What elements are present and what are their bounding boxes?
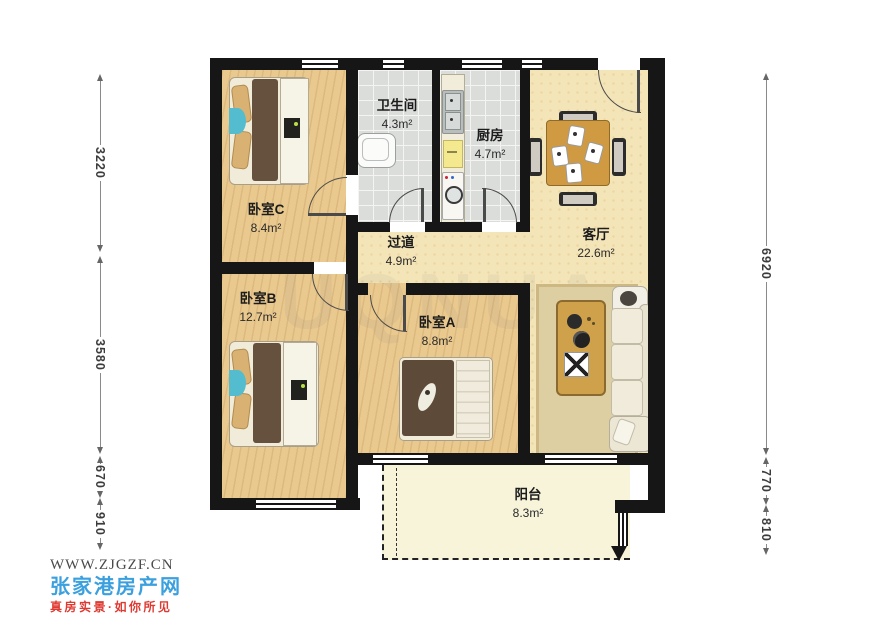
coffee-table-kettle-1 xyxy=(567,314,582,329)
wall-kitchen-right xyxy=(520,58,530,232)
balcony-area: 8.3m² xyxy=(513,505,544,522)
wall-bedroom-c-b-1 xyxy=(210,262,314,274)
dining-plate-3-dot xyxy=(591,149,595,153)
kitchen-washer-door xyxy=(445,186,463,204)
wall-left xyxy=(210,58,222,510)
bed-a-decor-dot xyxy=(425,390,430,395)
dining-chair-left-seat xyxy=(531,142,540,172)
dim-label: 3580 xyxy=(93,337,107,373)
wall-bath-kitchen-divider xyxy=(432,58,440,222)
bathroom-door-leaf xyxy=(421,188,424,222)
dining-plate-1-dot xyxy=(573,132,577,136)
bedroom-c-name: 卧室C xyxy=(248,201,285,220)
agency-logo: WWW.ZJGZF.CN 张家港房产网 真房实景·如你所见 xyxy=(50,556,182,615)
balcony-floor xyxy=(382,465,630,560)
dim-arrow xyxy=(763,505,769,512)
entry-door-leaf xyxy=(637,70,640,112)
dim-arrow xyxy=(763,548,769,555)
bathtub-inner xyxy=(362,138,389,161)
dim-arrow xyxy=(763,448,769,455)
dining-plate-4-dot xyxy=(571,169,575,173)
dim-label: 910 xyxy=(93,510,107,538)
tv-c-light xyxy=(294,122,298,126)
kitchen-area: 4.7m² xyxy=(475,146,506,163)
bed-c-throw xyxy=(229,108,246,134)
tv-b-light xyxy=(301,384,305,388)
hallway-area: 4.9m² xyxy=(386,253,417,270)
coffee-table-dot-1 xyxy=(587,317,591,321)
coffee-table-magazine xyxy=(564,352,589,377)
bedroom-a-name: 卧室A xyxy=(419,314,456,333)
hallway-label: 过道 4.9m² xyxy=(386,234,417,270)
living-room-name: 客厅 xyxy=(577,226,614,245)
dining-plate-2-dot xyxy=(557,152,561,156)
bedroom-c-area: 8.4m² xyxy=(248,220,285,237)
coffee-table-kettle-2 xyxy=(573,331,590,348)
bedroom-b-name: 卧室B xyxy=(239,290,276,309)
wall-bedroom-a-right xyxy=(518,283,530,465)
bedroom-b-door-leaf xyxy=(345,274,348,310)
bedroom-b-label: 卧室B 12.7m² xyxy=(239,290,276,326)
coffee-table xyxy=(556,300,606,396)
bedroom-c-door-leaf xyxy=(308,213,346,216)
agency-brand-name: 张家港房产网 xyxy=(50,575,182,600)
kitchen-washer-knob-1 xyxy=(445,176,448,179)
dim-right-810: 810 xyxy=(758,505,774,555)
dining-chair-right-seat xyxy=(614,142,623,172)
dim-label: 3220 xyxy=(93,145,107,181)
dim-arrow xyxy=(763,73,769,80)
wall-bedroom-a-top-2 xyxy=(406,283,530,295)
living-room-area: 22.6m² xyxy=(577,245,614,262)
bedroom-c-door-opening xyxy=(346,175,358,215)
bedroom-a-label: 卧室A 8.8m² xyxy=(419,314,456,350)
sofa-end-table-lamp xyxy=(620,291,637,306)
dim-left-3580: 3580 xyxy=(92,256,108,454)
dim-arrow xyxy=(97,543,103,550)
dim-left-3220: 3220 xyxy=(92,74,108,252)
dim-arrow xyxy=(97,74,103,81)
wall-spine-upper xyxy=(346,58,358,175)
balcony-label: 阳台 8.3m² xyxy=(513,486,544,522)
dim-label: 6920 xyxy=(759,246,773,282)
kitchen-drawer-handle xyxy=(447,151,457,153)
dim-arrow xyxy=(97,447,103,454)
balcony-name: 阳台 xyxy=(513,486,544,505)
floorplan-canvas: UQNUA xyxy=(0,0,880,625)
living-room-label: 客厅 22.6m² xyxy=(577,226,614,262)
window-kitchen xyxy=(462,58,502,70)
entry-door-opening xyxy=(598,58,640,70)
dim-label: 670 xyxy=(93,463,107,491)
dim-label: 770 xyxy=(759,467,773,495)
bathroom-label: 卫生间 4.3m² xyxy=(377,97,418,133)
kitchen-label: 厨房 4.7m² xyxy=(475,127,506,163)
dining-plate-1 xyxy=(566,125,585,147)
agency-website: WWW.ZJGZF.CN xyxy=(50,556,182,575)
wall-bedroom-a-top-1 xyxy=(358,283,368,295)
bed-a-mattress xyxy=(456,360,490,438)
dim-left-910: 910 xyxy=(92,498,108,550)
bedroom-c-label: 卧室C 8.4m² xyxy=(248,201,285,237)
dining-chair-bottom-seat xyxy=(563,195,593,204)
wall-balcony-end-triangle xyxy=(611,546,627,561)
tv-c xyxy=(284,118,300,138)
window-bedroom-b-south xyxy=(256,498,336,510)
window-balcony-side xyxy=(618,513,628,546)
bed-c-duvet xyxy=(252,79,278,181)
wall-spine-lower xyxy=(346,215,358,510)
dim-arrow xyxy=(763,498,769,505)
window-bedroom-a-south xyxy=(373,453,428,465)
kitchen-sink-basin-2 xyxy=(445,112,461,130)
sofa-cushion-3 xyxy=(611,380,643,416)
dim-arrow xyxy=(97,498,103,505)
dim-right-6920: 6920 xyxy=(758,73,774,455)
coffee-table-dot-2 xyxy=(592,322,595,325)
wall-right xyxy=(648,58,665,513)
dim-arrow xyxy=(97,491,103,498)
wall-bedroom-c-b-2 xyxy=(348,262,358,274)
sofa-cushion-2 xyxy=(611,344,643,380)
kitchen-sink-basin-1 xyxy=(445,93,461,111)
kitchen-drawer xyxy=(443,140,463,168)
window-bedroom-c xyxy=(302,58,338,70)
bedroom-a-area: 8.8m² xyxy=(419,333,456,350)
dim-arrow xyxy=(97,256,103,263)
dim-arrow xyxy=(97,245,103,252)
wall-hall-north-1 xyxy=(346,222,390,232)
dining-plate-4 xyxy=(565,162,583,183)
wall-balcony-step xyxy=(615,500,665,513)
wall-hall-north-2 xyxy=(425,222,482,232)
dim-label: 810 xyxy=(759,516,773,544)
bed-b-throw xyxy=(229,370,246,396)
dim-arrow xyxy=(763,457,769,464)
bathroom-name: 卫生间 xyxy=(377,97,418,116)
kitchen-door-leaf xyxy=(483,188,486,222)
wall-hall-north-3 xyxy=(516,222,530,232)
kitchen-sink-basin-1-drain xyxy=(450,99,453,102)
bedroom-b-area: 12.7m² xyxy=(239,309,276,326)
agency-slogan: 真房实景·如你所见 xyxy=(50,600,182,615)
dim-right-770: 770 xyxy=(758,457,774,505)
sofa-cushion-1 xyxy=(611,308,643,344)
kitchen-washer-knob-2 xyxy=(451,176,454,179)
bedroom-a-door-leaf xyxy=(403,295,406,331)
tv-b xyxy=(291,380,307,400)
bathroom-area: 4.3m² xyxy=(377,116,418,133)
dim-left-670: 670 xyxy=(92,456,108,498)
kitchen-name: 厨房 xyxy=(475,127,506,146)
dim-arrow xyxy=(97,456,103,463)
window-living-north xyxy=(522,58,542,70)
hallway-name: 过道 xyxy=(386,234,417,253)
bed-b-duvet xyxy=(253,343,281,443)
balcony-inner-dashed-line xyxy=(396,468,397,556)
window-living-south xyxy=(545,453,617,465)
window-bathroom xyxy=(383,58,404,70)
kitchen-sink-basin-2-drain xyxy=(450,118,453,121)
